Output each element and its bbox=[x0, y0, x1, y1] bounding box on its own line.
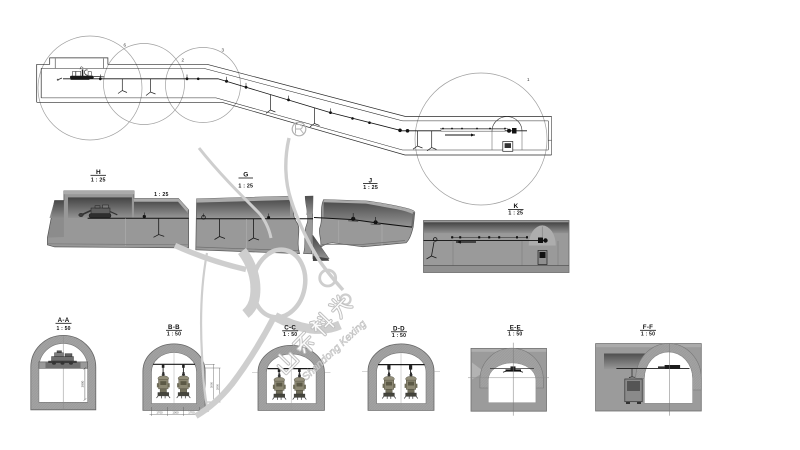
svg-text:1 : 25: 1 : 25 bbox=[91, 177, 106, 183]
svg-text:2800: 2800 bbox=[80, 380, 84, 387]
svg-text:H: H bbox=[96, 169, 101, 176]
svg-text:1700: 1700 bbox=[188, 411, 195, 415]
svg-text:G: G bbox=[243, 171, 248, 178]
svg-text:1 : 50: 1 : 50 bbox=[392, 333, 406, 339]
svg-text:1 : 25: 1 : 25 bbox=[508, 210, 523, 216]
svg-text:D-D: D-D bbox=[393, 325, 405, 332]
svg-text:B-B: B-B bbox=[168, 324, 180, 331]
svg-text:1 : 25: 1 : 25 bbox=[238, 183, 253, 189]
svg-text:1 : 25: 1 : 25 bbox=[154, 192, 168, 198]
svg-text:1 : 25: 1 : 25 bbox=[363, 185, 378, 191]
svg-text:1000: 1000 bbox=[172, 411, 179, 415]
svg-text:1 : 50: 1 : 50 bbox=[56, 326, 70, 332]
svg-text:2800: 2800 bbox=[216, 383, 220, 390]
svg-text:1 : 50: 1 : 50 bbox=[167, 331, 181, 337]
svg-text:1 : 50: 1 : 50 bbox=[508, 332, 522, 338]
svg-text:C-C: C-C bbox=[284, 324, 296, 331]
svg-text:3000: 3000 bbox=[210, 381, 214, 388]
svg-text:1 : 50: 1 : 50 bbox=[283, 332, 297, 338]
svg-text:1700: 1700 bbox=[156, 411, 163, 415]
svg-text:K: K bbox=[513, 203, 518, 210]
svg-text:1 : 50: 1 : 50 bbox=[641, 331, 655, 337]
